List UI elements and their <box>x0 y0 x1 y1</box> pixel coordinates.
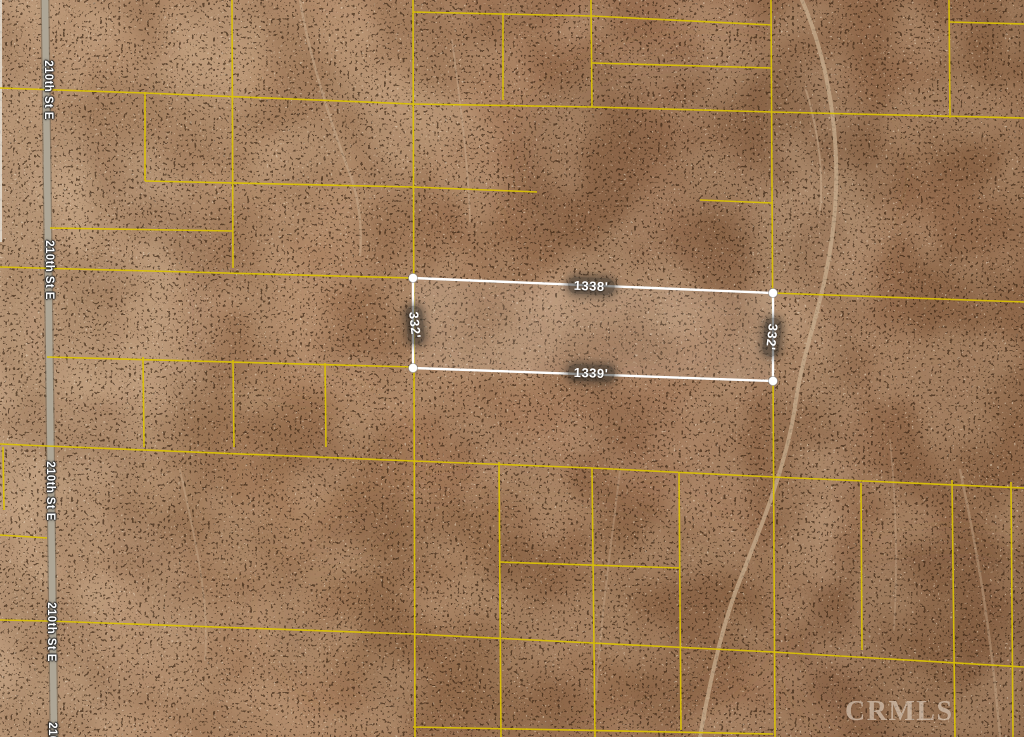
parcel-corner-dot <box>408 273 417 282</box>
parcel-corner-dot <box>408 363 417 372</box>
parcel-corner-dot <box>768 376 777 385</box>
satellite-parcel-map: 210th St E 210th St E 210th St E 210th S… <box>0 0 1024 737</box>
highlighted-parcel-outline <box>408 273 777 385</box>
map-canvas <box>0 0 1024 737</box>
parcel-corner-dot <box>768 288 777 297</box>
edge-artifact <box>0 0 2 242</box>
